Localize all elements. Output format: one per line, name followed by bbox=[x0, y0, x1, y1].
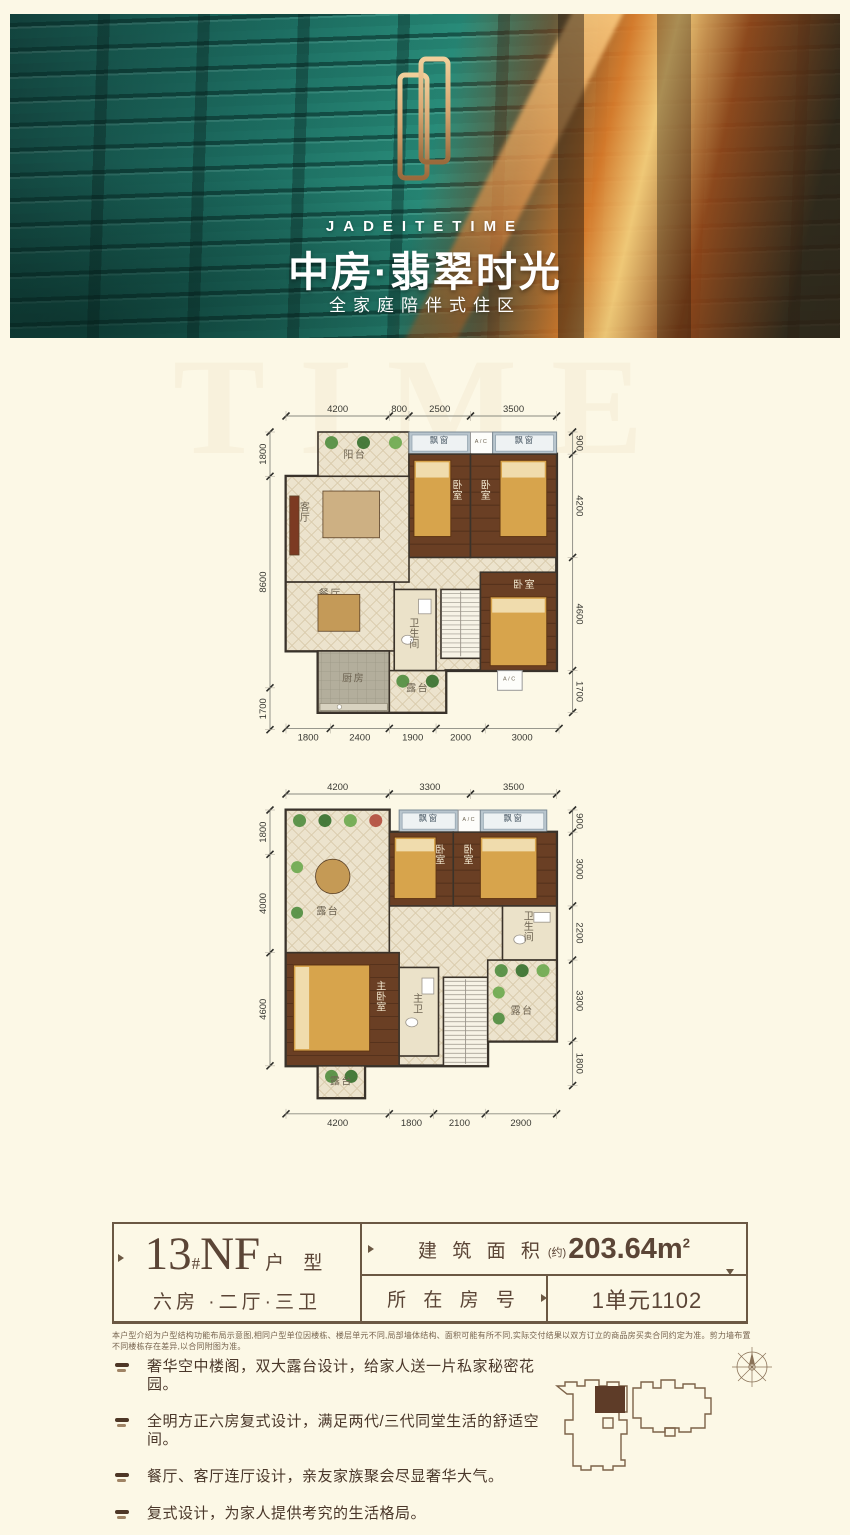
dimension-label: 3000 bbox=[512, 732, 533, 743]
dimension-label: 8600 bbox=[258, 571, 269, 592]
room-label: 卧室 bbox=[481, 479, 493, 503]
key-plan bbox=[545, 1340, 795, 1475]
dimension-label: 3300 bbox=[419, 782, 440, 793]
room-label: A/C bbox=[503, 676, 517, 682]
feature-item: 奢华空中楼阁，双大露台设计，给家人送一片私家秘密花园。 bbox=[115, 1358, 555, 1394]
room-label: 卫生间 bbox=[524, 911, 536, 943]
dimension-label: 3000 bbox=[574, 858, 585, 879]
dimension-label: 4200 bbox=[327, 1118, 348, 1129]
plant bbox=[325, 436, 338, 449]
feature-text: 全明方正六房复式设计，满足两代/三代同堂生活的舒适空间。 bbox=[147, 1413, 555, 1449]
room-layout-text: 六房 ·二厅·三卫 bbox=[153, 1287, 321, 1314]
dimension-label: 4200 bbox=[327, 782, 348, 793]
sink bbox=[534, 912, 550, 922]
room-label: A/C bbox=[462, 817, 476, 823]
dimension-label: 900 bbox=[574, 813, 585, 829]
marker-down-arrow-icon bbox=[726, 1269, 734, 1275]
room-number-cell: 所 在 房 号 1单元1102 bbox=[362, 1276, 746, 1321]
room-label: 阳台 bbox=[343, 448, 366, 461]
built-area-cell: 建 筑 面 积 (约) 203.64m2 bbox=[362, 1224, 746, 1276]
feature-item: 餐厅、客厅连厅设计，亲友家族聚会尽显奢华大气。 bbox=[115, 1468, 555, 1486]
room-label: 客厅 bbox=[300, 501, 312, 524]
room-label: 厨房 bbox=[342, 672, 365, 685]
furniture bbox=[323, 491, 380, 538]
room-label: 卧室 bbox=[464, 843, 476, 867]
floor-plan-lower: 露台飘窗A/C飘窗卧室卧室卫生间主卧室主卫露台露台420033003500420… bbox=[240, 770, 612, 1132]
dash-bullet-icon bbox=[115, 1473, 130, 1484]
marker-arrow-icon bbox=[368, 1245, 374, 1253]
unit-type-suffix: 户 型 bbox=[265, 1254, 329, 1273]
dimension-label: 900 bbox=[574, 435, 585, 451]
plant bbox=[389, 436, 402, 449]
unit-type-cell: 13 # NF 户 型 六房 ·二厅·三卫 bbox=[114, 1224, 362, 1321]
room-label: 卧室 bbox=[513, 578, 536, 591]
plant bbox=[537, 964, 550, 977]
dimension-label: 4200 bbox=[327, 404, 348, 415]
dimension-label: 2400 bbox=[349, 732, 370, 743]
feature-text: 餐厅、客厅连厅设计，亲友家族聚会尽显奢华大气。 bbox=[147, 1468, 504, 1486]
unit-type-code: NF bbox=[200, 1231, 260, 1278]
plant bbox=[357, 436, 370, 449]
dimension-label: 4200 bbox=[574, 495, 585, 516]
feature-text: 复式设计，为家人提供考究的生活格局。 bbox=[147, 1505, 426, 1523]
built-area-note: (约) bbox=[548, 1244, 566, 1260]
dimension-label: 1700 bbox=[574, 681, 585, 702]
plant bbox=[495, 964, 508, 977]
toilet bbox=[406, 1018, 418, 1027]
marker-arrow-icon bbox=[541, 1294, 547, 1302]
dash-bullet-icon bbox=[115, 1510, 130, 1521]
info-right-column: 建 筑 面 积 (约) 203.64m2 所 在 房 号 1单元1102 bbox=[362, 1224, 746, 1321]
hash-sign: # bbox=[192, 1255, 201, 1272]
marker-arrow-icon bbox=[118, 1254, 124, 1262]
jadeite-monogram-logo bbox=[377, 54, 473, 204]
feature-item: 全明方正六房复式设计，满足两代/三代同堂生活的舒适空间。 bbox=[115, 1413, 555, 1449]
flyer-page: { "banner": { "en_title": "JADEITETIME",… bbox=[0, 0, 850, 1535]
dimension-label: 1800 bbox=[574, 1053, 585, 1074]
room-label: 飘窗 bbox=[504, 813, 524, 823]
built-area-value: 203.64m2 bbox=[568, 1233, 690, 1266]
room-label: 露台 bbox=[330, 1074, 353, 1087]
furniture bbox=[290, 496, 299, 555]
dimension-label: 2900 bbox=[510, 1118, 531, 1129]
room-number-label: 所 在 房 号 bbox=[362, 1276, 548, 1321]
dimension-label: 1800 bbox=[258, 444, 269, 465]
dimension-label: 4600 bbox=[258, 999, 269, 1020]
compass-icon bbox=[732, 1347, 772, 1387]
room-label: 主卫 bbox=[413, 993, 425, 1016]
dimension-label: 1800 bbox=[401, 1118, 422, 1129]
dimension-label: 3300 bbox=[574, 990, 585, 1011]
feature-text: 奢华空中楼阁，双大露台设计，给家人送一片私家秘密花园。 bbox=[147, 1358, 555, 1394]
dash-bullet-icon bbox=[115, 1363, 130, 1374]
dash-bullet-icon bbox=[115, 1418, 130, 1429]
dimension-label: 3500 bbox=[503, 404, 524, 415]
dimension-label: 1800 bbox=[258, 822, 269, 843]
dimension-label: 2200 bbox=[574, 922, 585, 943]
room-label: 飘窗 bbox=[430, 435, 450, 445]
unit-location-marker bbox=[595, 1386, 625, 1413]
dimension-label: 4000 bbox=[258, 893, 269, 914]
room-label: 露台 bbox=[316, 905, 339, 918]
dimension-label: 4600 bbox=[574, 603, 585, 624]
dimension-label: 1700 bbox=[258, 698, 269, 719]
room-label: 主卧室 bbox=[376, 981, 388, 1014]
room-label: 卫生间 bbox=[409, 618, 421, 650]
furniture bbox=[318, 594, 360, 631]
feature-item: 复式设计，为家人提供考究的生活格局。 bbox=[115, 1505, 555, 1523]
dimension-label: 800 bbox=[391, 404, 407, 415]
sink bbox=[418, 599, 431, 614]
room-label: 露台 bbox=[511, 1004, 534, 1017]
banner-chinese-title: 中房·翡翠时光 bbox=[10, 238, 840, 298]
room-label: 卧室 bbox=[452, 479, 464, 503]
dimension-label: 2100 bbox=[449, 1118, 470, 1129]
block-number: 13 bbox=[145, 1231, 192, 1278]
hero-banner: JADEITETIME 中房·翡翠时光 全家庭陪伴式住区 bbox=[10, 14, 840, 338]
room-label: A/C bbox=[475, 439, 489, 445]
room-number-value: 1单元1102 bbox=[548, 1276, 746, 1321]
plant bbox=[369, 814, 382, 827]
built-area-label: 建 筑 面 积 bbox=[418, 1236, 545, 1263]
dimension-label: 1800 bbox=[298, 732, 319, 743]
building-footprint bbox=[557, 1380, 711, 1470]
dimension-label: 1900 bbox=[402, 732, 423, 743]
banner-english-title: JADEITETIME bbox=[10, 218, 840, 235]
unit-type-title: 13 # NF 户 型 bbox=[145, 1231, 330, 1278]
plant bbox=[516, 964, 529, 977]
floor-plan-upper: 阳台飘窗A/C飘窗卧室卧室卧室客厅餐厅卫生间厨房露台A/C42008002500… bbox=[240, 392, 612, 748]
room-label: 露台 bbox=[406, 682, 429, 695]
sink bbox=[422, 978, 434, 994]
banner-subtitle: 全家庭陪伴式住区 bbox=[10, 291, 840, 316]
furniture bbox=[316, 859, 350, 893]
kitchen-counter bbox=[320, 703, 387, 710]
unit-info-table: 13 # NF 户 型 六房 ·二厅·三卫 建 筑 面 积 (约) 203.64… bbox=[112, 1222, 748, 1324]
plant bbox=[344, 814, 357, 827]
plant bbox=[318, 814, 331, 827]
plant bbox=[293, 814, 306, 827]
feature-list: 奢华空中楼阁，双大露台设计，给家人送一片私家秘密花园。全明方正六房复式设计，满足… bbox=[115, 1358, 555, 1535]
room-label: 飘窗 bbox=[515, 435, 535, 445]
dimension-label: 2000 bbox=[450, 732, 471, 743]
room-label: 卧室 bbox=[435, 843, 447, 867]
dimension-label: 3500 bbox=[503, 782, 524, 793]
room-label: 飘窗 bbox=[419, 813, 439, 823]
dimension-label: 2500 bbox=[429, 404, 450, 415]
